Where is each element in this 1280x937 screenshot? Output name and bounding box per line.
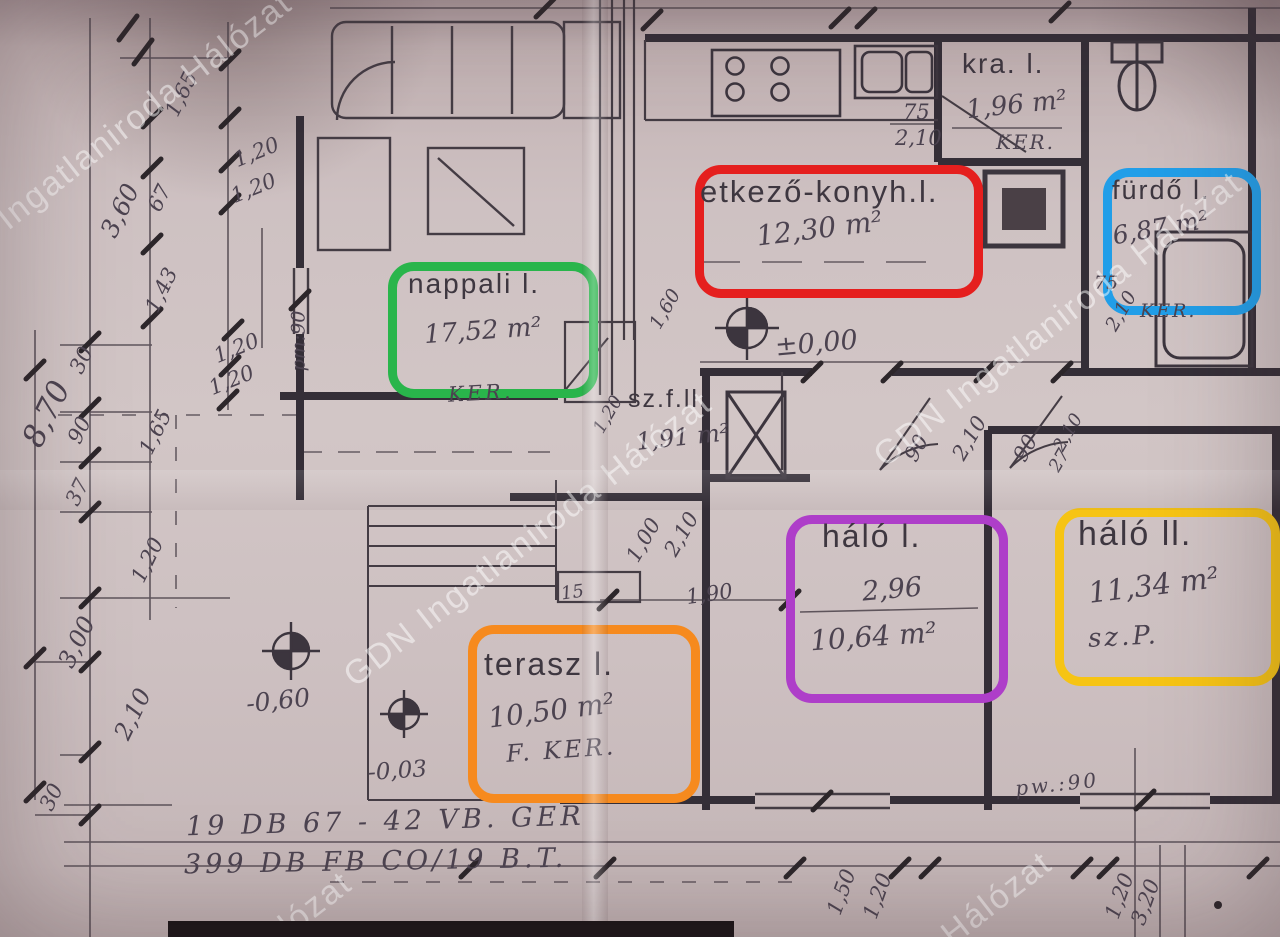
room-label-etkezo: etkező-konyh.l. [700,174,939,210]
room-note-nappali: KER. [447,379,514,406]
room-label-kamra: kra. l. [962,48,1044,80]
dim-text: 2,10 [895,126,942,150]
room-label-nappali: nappali l. [408,268,540,300]
paper-fold-crease [582,0,608,937]
paper-crease [0,470,1280,510]
room-label-halo1: háló l. [822,518,921,555]
room-note-kamra: KER. [996,130,1055,154]
level-mark-minus03: -0,03 [367,756,428,786]
room-note-halo2: sz.P. [1087,620,1159,654]
bottom-black-bar [168,921,734,937]
room-label-halo2: háló ll. [1078,515,1192,554]
room-note-furdo: KER. [1140,300,1196,322]
dim-text: 75 [903,100,930,124]
room-width-halo1: 2,96 [861,571,924,607]
floorplan-photo: nappali l. 17,52 m² KER. etkező-konyh.l.… [0,0,1280,937]
dim-text: pm:90 [287,311,309,372]
